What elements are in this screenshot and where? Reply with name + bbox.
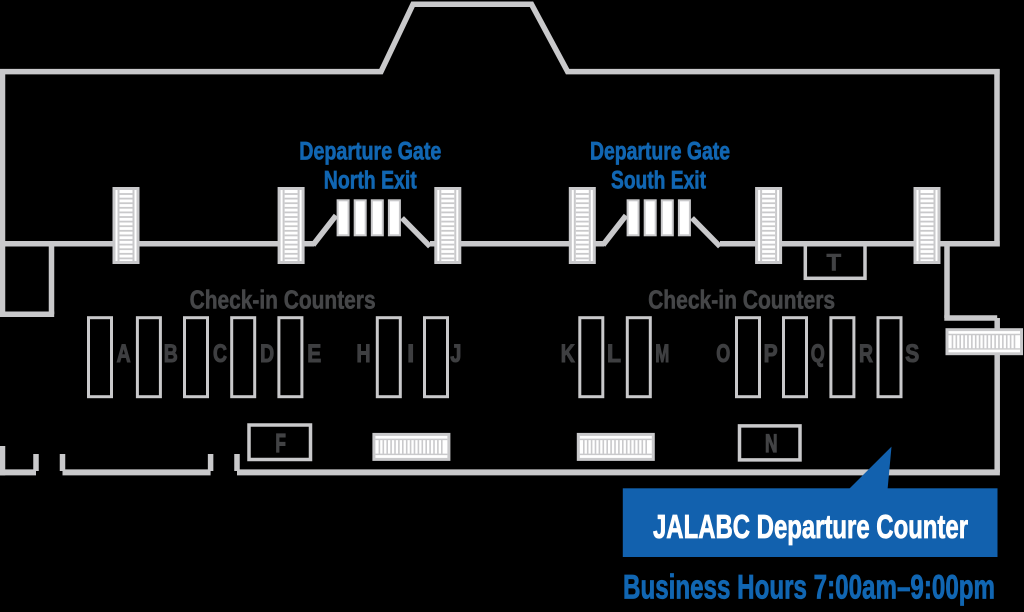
svg-text:J: J (450, 340, 461, 368)
svg-text:O: O (716, 340, 730, 368)
svg-text:Check-in Counters: Check-in Counters (648, 285, 835, 315)
svg-text:North Exit: North Exit (324, 167, 418, 195)
svg-text:Q: Q (811, 340, 825, 368)
svg-text:JALABC Departure Counter: JALABC Departure Counter (653, 508, 968, 545)
svg-text:H: H (357, 340, 371, 368)
svg-text:A: A (117, 340, 131, 368)
svg-text:S: S (905, 340, 919, 368)
svg-text:Business Hours 7:00am–9:00pm: Business Hours 7:00am–9:00pm (623, 569, 995, 607)
svg-text:N: N (765, 430, 778, 458)
svg-text:D: D (260, 340, 274, 368)
svg-text:Departure Gate: Departure Gate (590, 137, 730, 165)
svg-text:C: C (213, 340, 227, 368)
svg-text:F: F (275, 428, 286, 458)
svg-text:South Exit: South Exit (611, 167, 707, 195)
svg-text:L: L (607, 340, 621, 368)
svg-text:Departure Gate: Departure Gate (299, 137, 441, 165)
svg-text:I: I (407, 340, 414, 368)
svg-text:K: K (561, 340, 575, 368)
svg-text:M: M (655, 340, 669, 368)
svg-text:Check-in Counters: Check-in Counters (190, 285, 376, 315)
svg-text:E: E (307, 340, 321, 368)
svg-text:R: R (859, 340, 873, 368)
svg-text:P: P (764, 340, 778, 368)
svg-text:B: B (164, 340, 178, 368)
svg-text:T: T (826, 249, 841, 276)
